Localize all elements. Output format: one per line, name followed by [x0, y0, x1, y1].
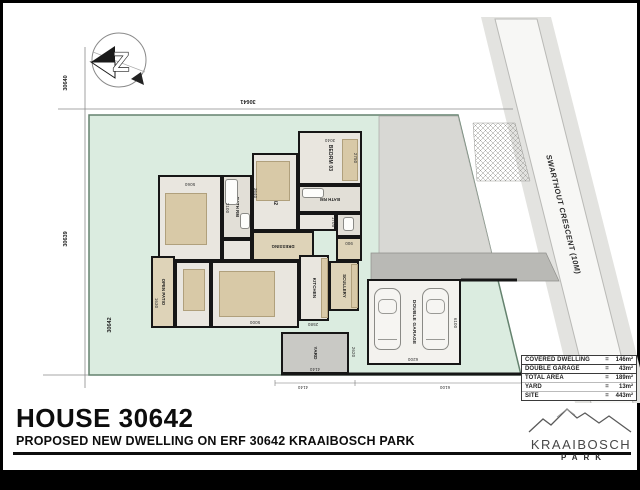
dimension-text: 6100: [453, 318, 458, 328]
dimension-text: 2580: [308, 322, 318, 327]
dimension-text: 4140: [298, 385, 308, 390]
area-row-equals: =: [603, 384, 611, 390]
area-row-label: DOUBLE GARAGE: [525, 366, 603, 372]
area-row-value: 13m²: [611, 384, 633, 390]
drawing-sheet-page: { "page": { "title": "HOUSE 30642", "sub…: [0, 0, 640, 490]
dimension-text: 6200: [408, 357, 418, 362]
area-row-value: 189m²: [611, 375, 633, 381]
title-block: HOUSE 30642 PROPOSED NEW DWELLING ON ERF…: [16, 404, 415, 448]
area-row-value: 443m²: [611, 393, 633, 399]
area-row-label: TOTAL AREA: [525, 375, 603, 381]
area-row-equals: =: [603, 357, 611, 363]
dimension-text: 6100: [440, 385, 450, 390]
area-row-equals: =: [603, 393, 611, 399]
area-row-label: YARD: [525, 384, 603, 390]
area-table-row: YARD = 13m²: [522, 382, 636, 391]
dimension-text: 1630: [154, 298, 159, 308]
area-row-label: SITE: [525, 393, 603, 399]
dimension-text: 1705: [331, 217, 336, 227]
page-subtitle: PROPOSED NEW DWELLING ON ERF 30642 KRAAI…: [16, 434, 415, 448]
dimension-text: 900: [345, 241, 353, 246]
mountain-ridge-icon: [527, 404, 635, 434]
dimensions-layer: 5060 3040 2750 3640 2100 900 1705: [3, 3, 640, 403]
dimension-text: 3640: [253, 188, 258, 198]
logo-subtitle: PARK: [525, 453, 637, 462]
drawing-sheet: 30640 30639 30642 30641 SWARTHOUT CRESCE…: [3, 3, 637, 470]
area-table-row: SITE = 443m²: [522, 391, 636, 400]
area-row-equals: =: [603, 375, 611, 381]
area-schedule-table: COVERED DWELLING = 146m² DOUBLE GARAGE =…: [521, 355, 637, 401]
dimension-text: 2750: [353, 153, 358, 163]
dimension-text: 3040: [325, 138, 335, 143]
area-table-row: COVERED DWELLING = 146m²: [522, 356, 636, 364]
area-row-label: COVERED DWELLING: [525, 357, 603, 363]
dimension-text: 4140: [310, 367, 320, 372]
dimension-text: 2620: [351, 347, 356, 357]
page-title: HOUSE 30642: [16, 404, 415, 433]
area-table-row: DOUBLE GARAGE = 43m²: [522, 364, 636, 373]
logo-name: KRAAIBOSCH: [525, 437, 637, 452]
area-row-equals: =: [603, 366, 611, 372]
area-table-row: TOTAL AREA = 189m²: [522, 373, 636, 382]
area-row-value: 146m²: [611, 357, 633, 363]
kraaibosch-park-logo: KRAAIBOSCH PARK: [525, 404, 637, 462]
dimension-text: 2100: [225, 203, 230, 213]
area-row-value: 43m²: [611, 366, 633, 372]
dimension-text: 5060: [185, 182, 195, 187]
dimension-text: 5000: [250, 320, 260, 325]
